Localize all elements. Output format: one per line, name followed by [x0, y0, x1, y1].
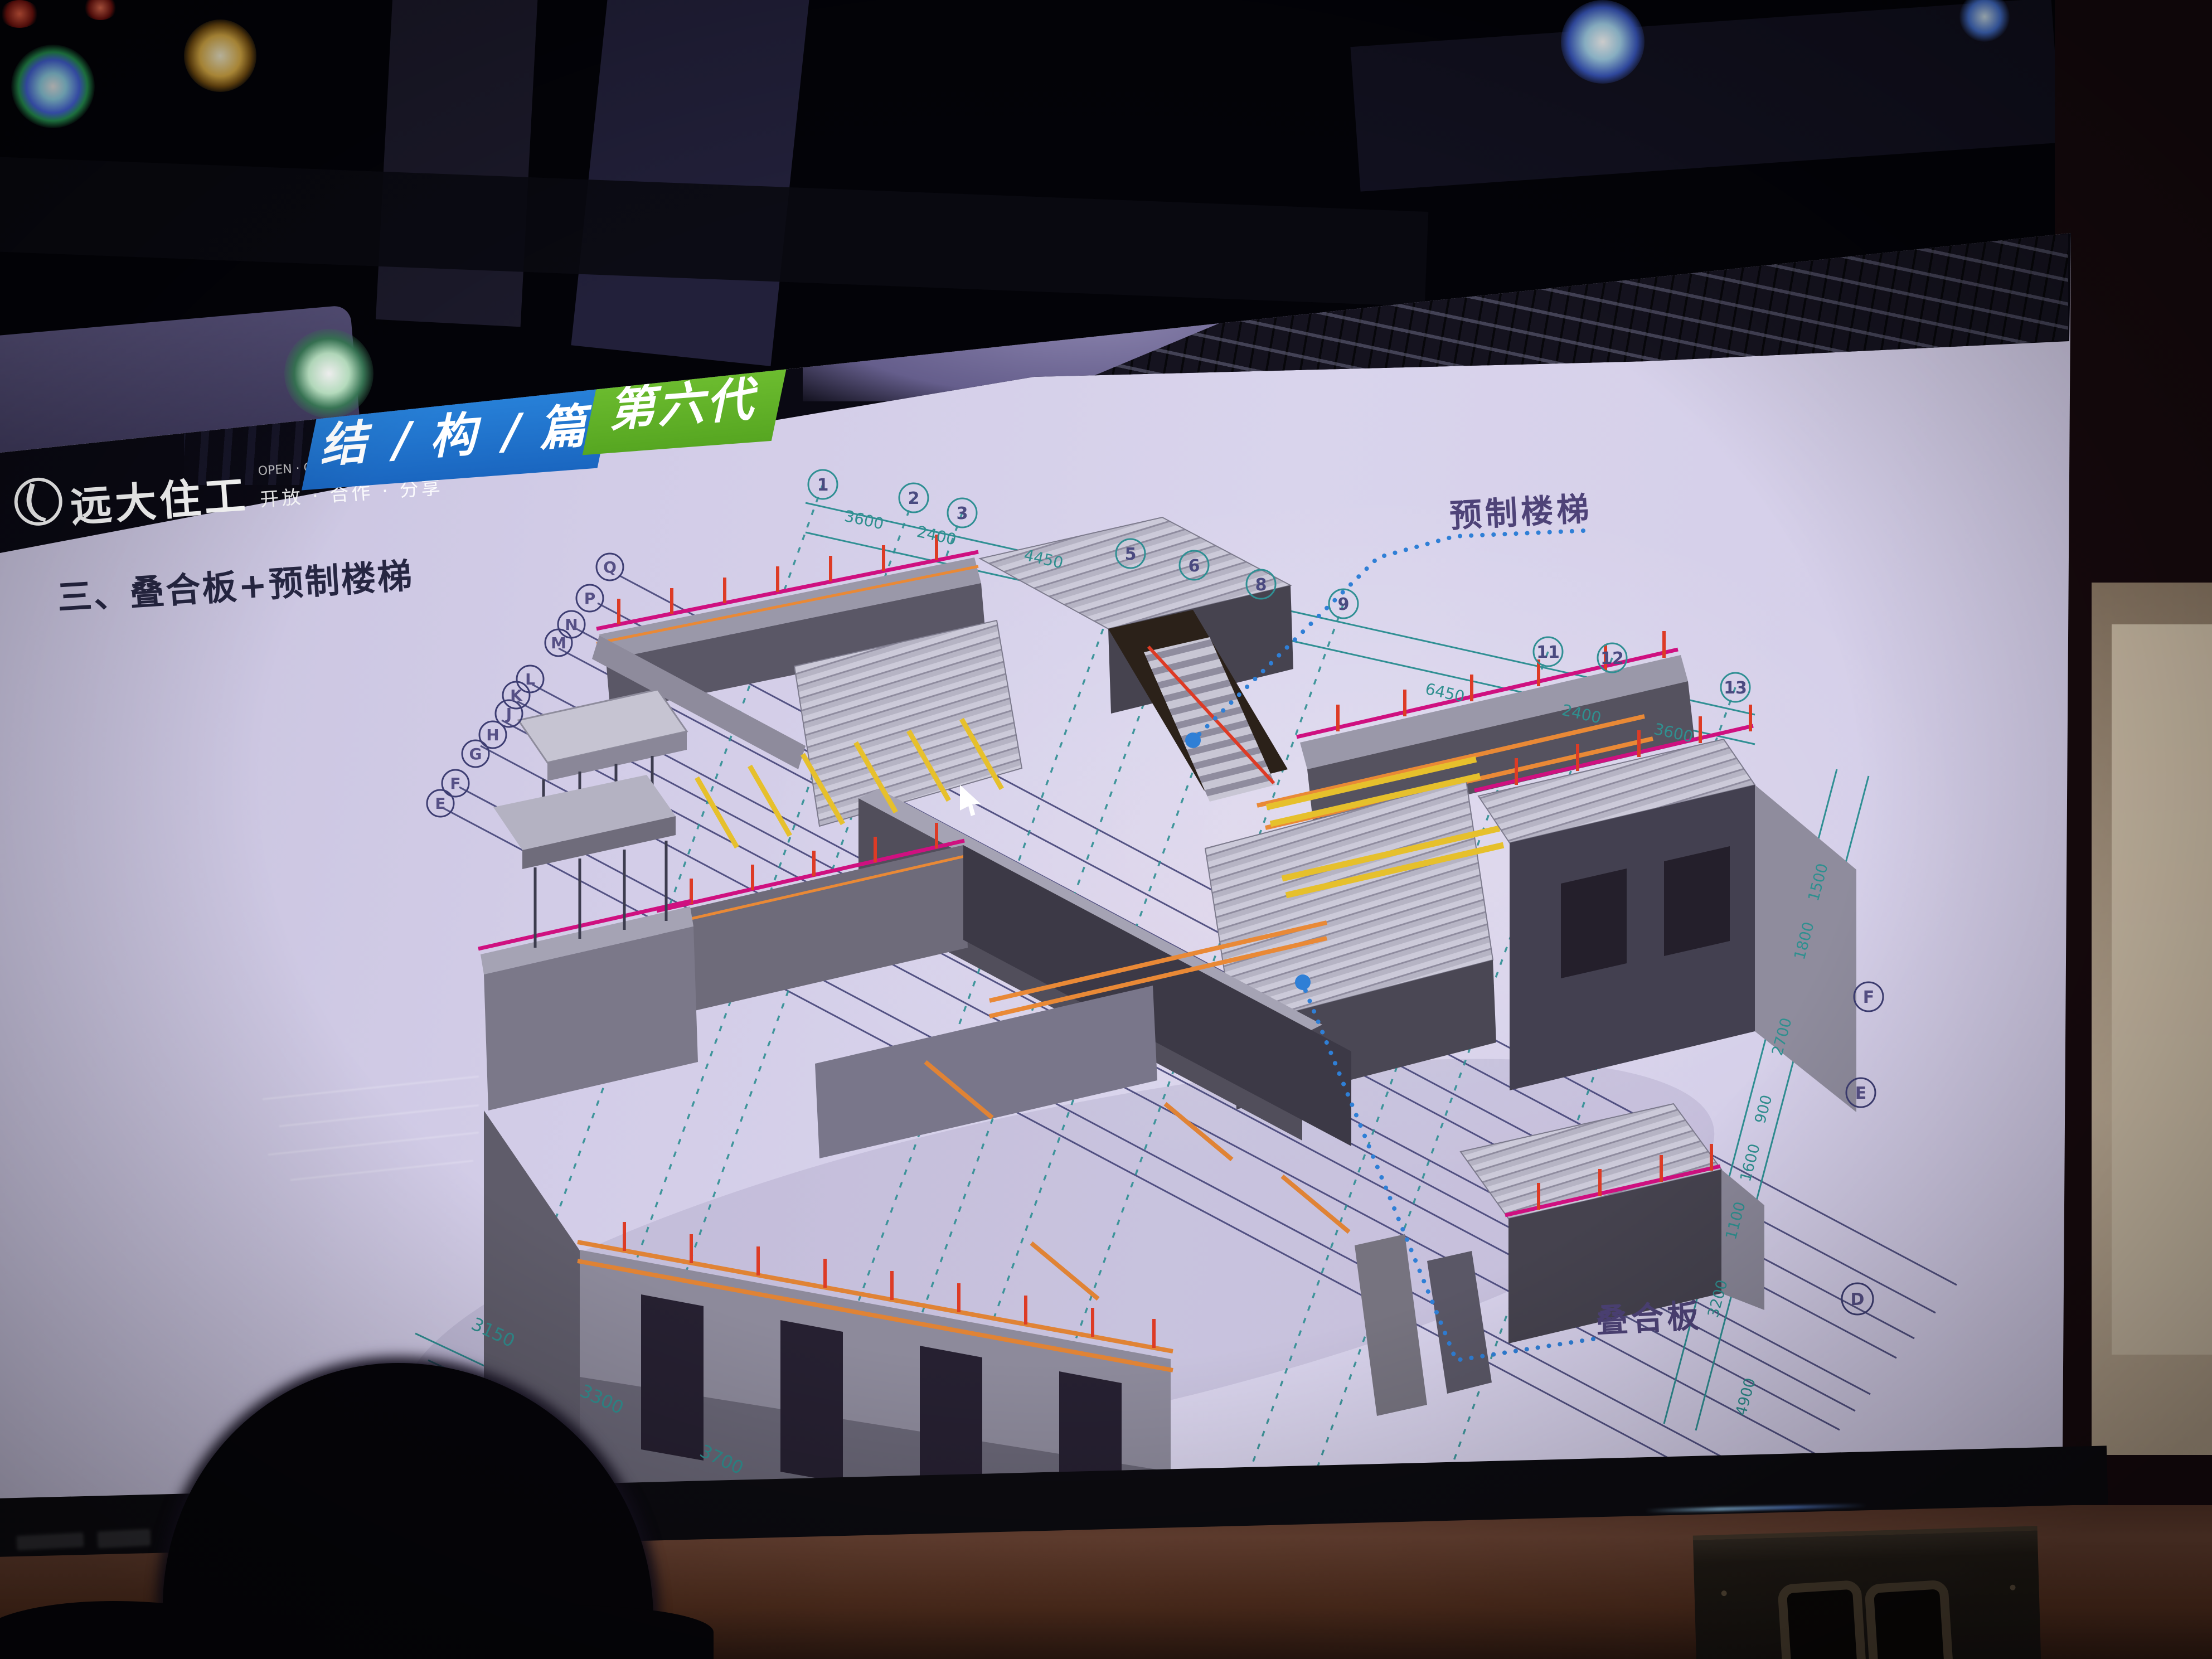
led-light-red-icon	[84, 0, 117, 20]
dim-label: 2400	[915, 522, 958, 549]
grid-bubble: G	[469, 745, 482, 763]
grid-bubble: E	[1855, 1084, 1867, 1103]
grid-bubble: Q	[603, 558, 617, 576]
grid-bubble: M	[551, 634, 566, 652]
led-light-red-icon	[0, 0, 39, 28]
grid-bubble: 6	[1189, 556, 1200, 576]
grid-bubble: N	[565, 615, 578, 634]
grid-bubble: 5	[1125, 545, 1137, 564]
annotation-composite-slab: 叠合板	[1594, 1289, 1704, 1342]
grid-bubble: D	[1851, 1290, 1865, 1309]
leader-dot-stairs	[1185, 733, 1201, 748]
dim-label: 4900	[1733, 1376, 1759, 1418]
dim-label: 3600	[843, 507, 886, 533]
grid-bubble: 3	[957, 504, 968, 523]
grid-bubble: 11	[1536, 643, 1560, 662]
leader-dot-slab	[1295, 974, 1311, 990]
grid-bubble: K	[510, 686, 523, 705]
speaker-port-icon	[1864, 1579, 1954, 1659]
dim-label: 6450	[1424, 680, 1467, 706]
annotation-prefab-stairs: 预制楼梯	[1448, 482, 1593, 536]
speaker-port-icon	[1777, 1580, 1867, 1659]
grid-bubble: 9	[1338, 595, 1350, 614]
grid-bubble: P	[584, 589, 596, 608]
grid-bubbles-left: Q P N M L K J H G F E	[427, 554, 623, 817]
bezel-reflection	[97, 1529, 151, 1549]
audience-shoulder-silhouette	[357, 1605, 714, 1659]
grid-bubble: L	[525, 670, 535, 688]
grid-bubble: 1	[817, 476, 829, 495]
grid-bubble: H	[486, 726, 499, 744]
ceiling-panel	[376, 0, 539, 327]
speaker-screw	[1721, 1590, 1727, 1596]
ceiling-panel	[1350, 0, 2061, 192]
grid-bubble: 12	[1600, 649, 1624, 668]
led-light-warm-icon	[184, 20, 256, 92]
right-wall-panel-inset	[2112, 624, 2212, 1355]
dim-label: 1600	[1737, 1142, 1764, 1183]
photo-canvas: 远大住工 OPEN · COOPERATION · SHARE 开放 · 合作 …	[0, 0, 2212, 1659]
grid-bubble: F	[1863, 988, 1875, 1007]
grid-bubble: 2	[908, 489, 920, 508]
grid-bubble: 13	[1724, 678, 1747, 698]
grid-bubble: 8	[1255, 575, 1267, 595]
grid-bubble: E	[435, 794, 445, 813]
speaker-screw	[2010, 1585, 2015, 1590]
grid-bubble: J	[505, 705, 512, 723]
grid-bubble: F	[450, 774, 460, 793]
speaker-cabinet	[1693, 1526, 2041, 1659]
led-light-multicolor-icon	[11, 45, 95, 128]
dim-label: 900	[1752, 1093, 1776, 1126]
